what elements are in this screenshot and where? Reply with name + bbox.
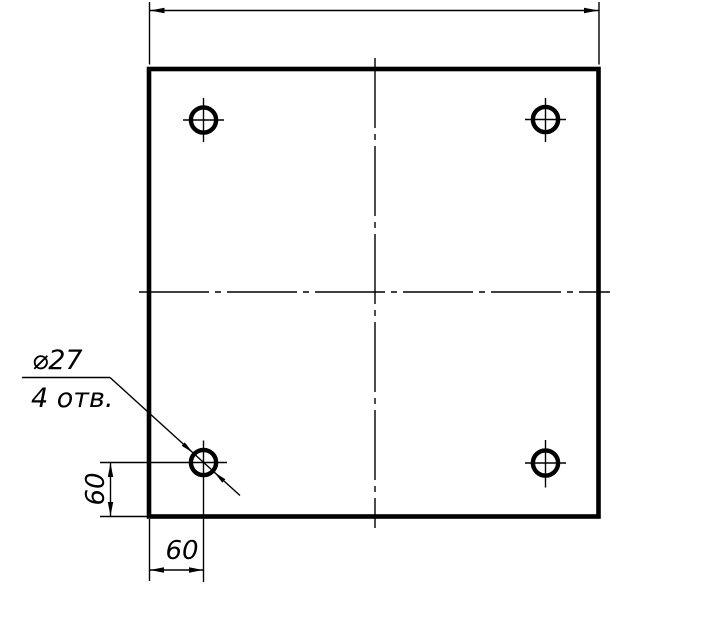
arrowhead-right-icon — [189, 567, 203, 572]
arrowhead-left-icon — [150, 8, 165, 14]
horizontal-60-dimension: 60 — [150, 519, 204, 581]
callout-diameter-value: ⌀27 — [32, 345, 83, 376]
arrowhead-right-icon — [584, 8, 599, 14]
leader-arrowhead-icon — [214, 472, 225, 482]
callout-hole-count: 4 отв. — [31, 383, 114, 414]
vertical-60-dimension: 60 — [81, 463, 148, 517]
arrowhead-left-icon — [150, 567, 164, 572]
hole-top-right — [525, 98, 566, 142]
plate-outline — [149, 69, 599, 517]
top-width-dimension — [150, 2, 600, 65]
dimension-value: 60 — [165, 536, 198, 566]
hole-top-left — [183, 98, 224, 142]
hole-bottom-left — [100, 441, 227, 583]
engineering-drawing: 60 60 ⌀27 4 отв. — [0, 0, 713, 631]
dimension-value: 60 — [81, 472, 111, 505]
hole-bottom-right — [525, 440, 566, 488]
